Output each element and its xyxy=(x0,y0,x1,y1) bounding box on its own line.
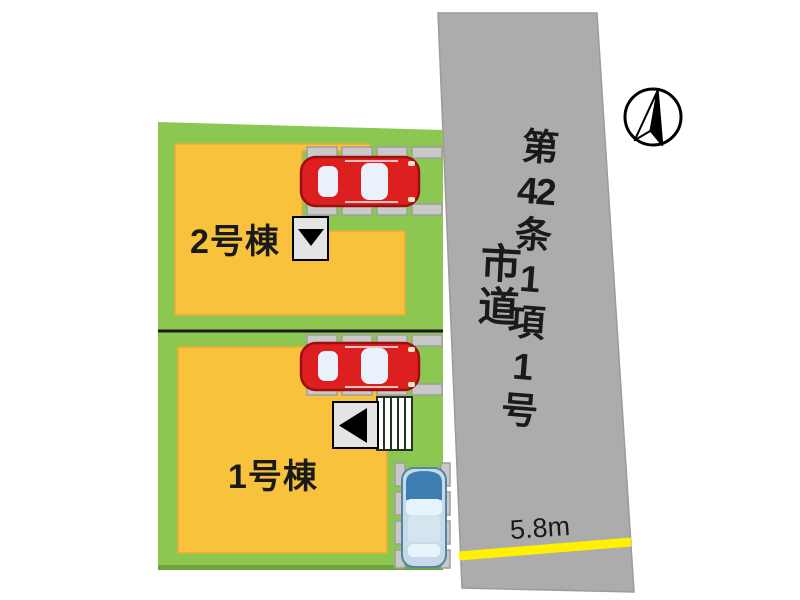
entrance-marker-1 xyxy=(333,402,378,448)
red-car-upper xyxy=(301,157,419,206)
road-width-label: 5.8m xyxy=(509,511,571,546)
building-1-label: 1号棟 xyxy=(228,449,318,498)
building-2-label: 2号棟 xyxy=(190,214,280,263)
road-article-char: 42 xyxy=(511,168,560,215)
stairs-icon xyxy=(377,397,412,450)
blue-car xyxy=(402,468,446,567)
road-article-char: 第 xyxy=(515,124,564,171)
road-article-char: 1 xyxy=(497,344,546,391)
site-plan-drawing xyxy=(0,0,800,600)
road-article-char: 号 xyxy=(494,387,543,434)
entrance-marker-2 xyxy=(293,217,328,260)
site-plan: 2号棟 1号棟 第 42 条 1 項 1 号 市道 5.8m xyxy=(0,0,800,600)
red-car-lower xyxy=(301,343,419,390)
road-name-label: 市道 xyxy=(464,240,528,329)
north-arrow-icon xyxy=(625,88,681,145)
